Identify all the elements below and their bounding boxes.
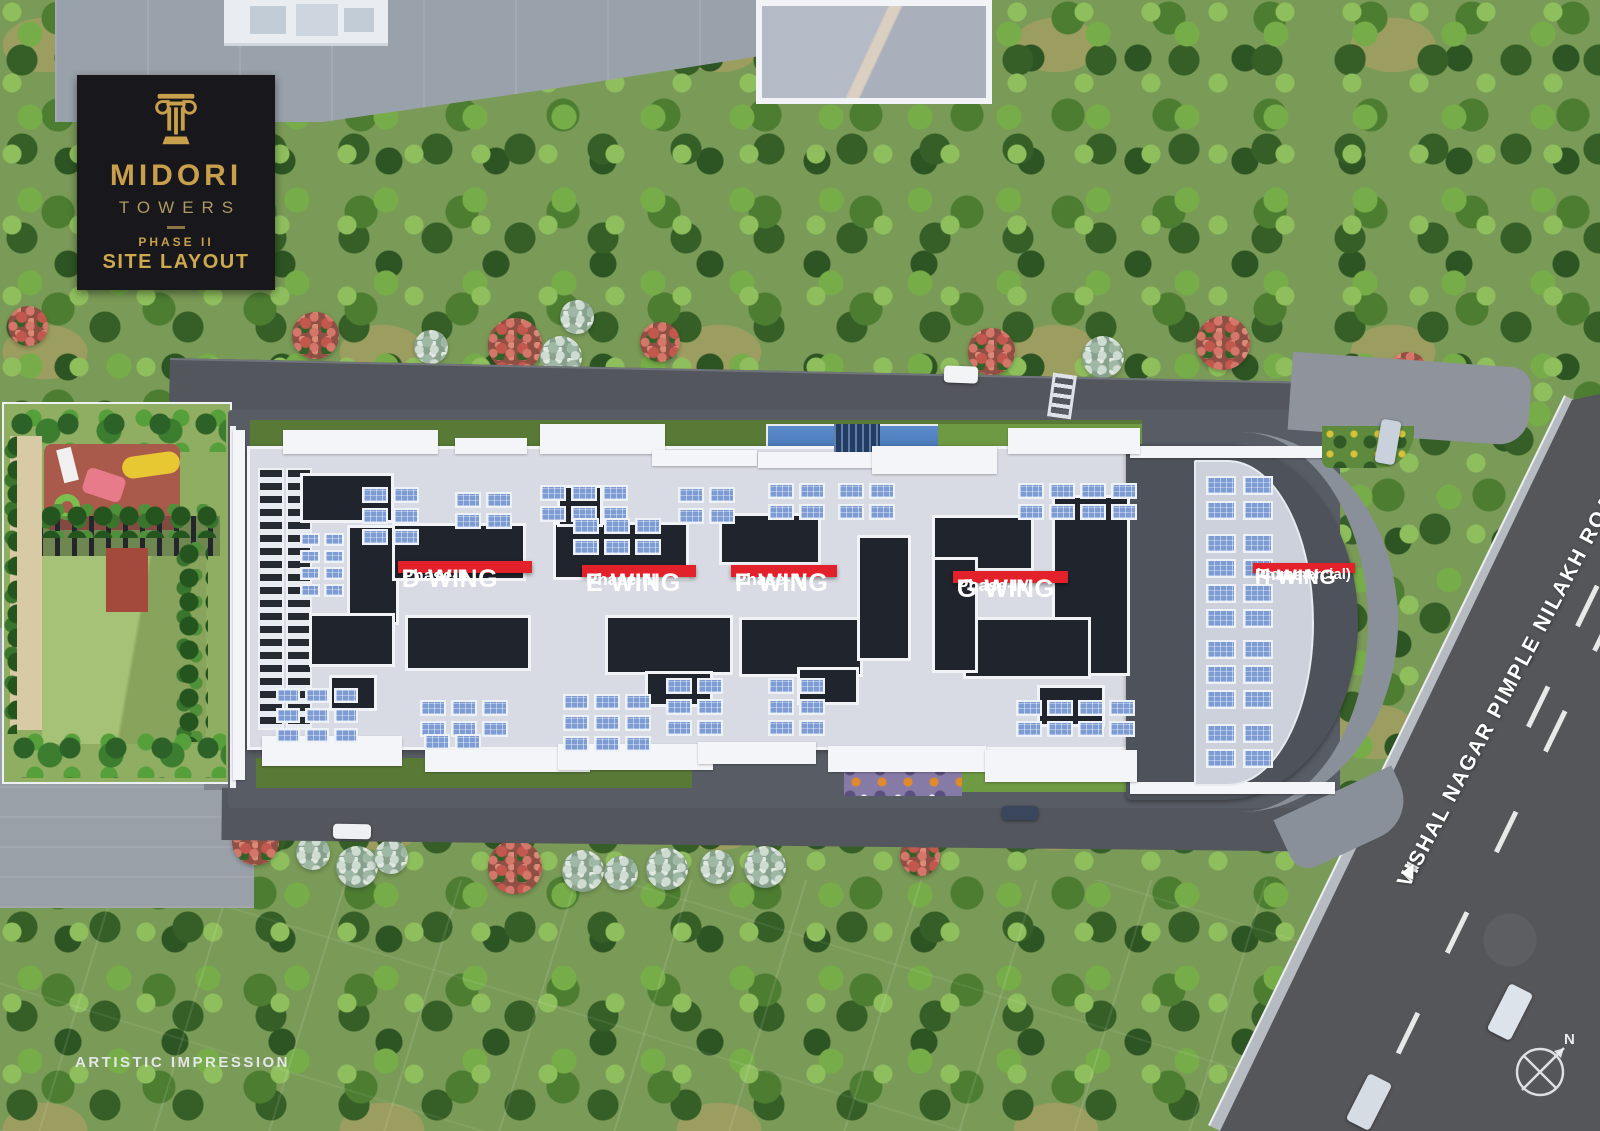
solar-panel [1206,501,1236,520]
solar-panel [1111,483,1137,499]
white-roof-block [233,430,245,780]
solar-panel [1016,721,1042,737]
solar-panel [393,508,419,524]
shrub-row [38,504,220,538]
solar-panel [768,699,794,715]
solar-panel [334,728,358,743]
solar-panel [594,736,620,752]
solar-panel [1243,640,1273,659]
silver-tree [560,300,594,334]
solar-panel [1018,504,1044,520]
solar-panel [563,736,589,752]
solar-panel [1206,640,1236,659]
wing-phase: Phase-IV [957,576,1029,596]
solar-panel [1206,665,1236,684]
solar-panel [563,694,589,710]
solar-panel [324,550,344,563]
tower-core-roof [608,618,730,672]
silver-tree [700,850,734,884]
silver-tree [336,846,378,888]
flowering-tree [640,322,680,362]
flowering-tree [8,306,48,346]
silver-tree [414,330,448,364]
solar-panel [276,688,300,703]
silver-tree [646,848,688,890]
solar-panel [635,518,661,534]
solar-panel [455,734,481,750]
solar-panel [451,700,477,716]
wing-label-e: E WING Phase-III [582,565,696,577]
solar-panel [1243,609,1273,628]
wing-label-d: D WING Phase-II [398,561,532,573]
neighbour-building-b [756,0,992,104]
solar-panel [482,700,508,716]
solar-panel [324,584,344,597]
flowering-tree [1196,316,1250,370]
solar-panel [455,492,481,508]
solar-panel [799,483,825,499]
wing-phase: Phase-II [402,566,467,586]
solar-panel [666,720,692,736]
white-roof-block [283,430,438,454]
solar-panel [869,483,895,499]
solar-panel [482,721,508,737]
tower-core-roof [312,616,392,664]
solar-panel [838,483,864,499]
solar-panel [1080,483,1106,499]
sheet-title: SITE LAYOUT [103,251,250,274]
solar-panel [625,736,651,752]
project-logo-card: MIDORI TOWERS PHASE II SITE LAYOUT [77,75,275,290]
solar-panel [1206,534,1236,553]
solar-panel [1111,504,1137,520]
solar-panel [1206,724,1236,743]
solar-panel [678,508,704,524]
solar-panel [300,550,320,563]
solar-panel [1243,749,1273,768]
solar-panel [276,728,300,743]
flowering-tree [488,840,542,894]
neighbour-building-a [224,0,388,46]
solar-panel [486,492,512,508]
silver-tree [296,836,330,870]
silver-tree [604,856,638,890]
solar-panel [1080,504,1106,520]
solar-panel [305,728,329,743]
solar-panel [1206,476,1236,495]
car [1002,806,1038,820]
solar-panel [768,678,794,694]
silver-tree [1082,336,1124,378]
solar-panel [1109,700,1135,716]
solar-panel [563,715,589,731]
solar-panel [486,513,512,529]
solar-panel [393,487,419,503]
solar-panel [1109,721,1135,737]
solar-panel [1206,749,1236,768]
wing-label-h: H WING Phase-V (Commercial) [1253,563,1355,573]
solar-panel [1018,483,1044,499]
solar-panel [594,694,620,710]
solar-panel [1206,559,1236,578]
solar-panel [334,708,358,723]
solar-panel [697,699,723,715]
wing-phase: Phase-IV [735,570,807,590]
solar-panel [799,720,825,736]
tower-core-roof [966,620,1088,676]
solar-panel [666,699,692,715]
solar-panel [1243,534,1273,553]
solar-panel [604,539,630,555]
white-roof-block [872,446,997,474]
survey-plot-lines [0,880,1300,1131]
solar-panel [799,504,825,520]
white-roof-block [828,746,986,772]
wing-label-f: F WING Phase-IV [731,565,837,577]
solar-panel [838,504,864,520]
solar-panel [455,513,481,529]
compass-icon: N [1500,1026,1584,1110]
tower-core-roof [742,620,860,674]
divider [167,226,185,229]
solar-panel [424,734,450,750]
wing-note: (Commercial) [1255,567,1351,584]
solar-panel [625,694,651,710]
solar-panel [625,715,651,731]
h-wing-parapet [1130,446,1335,458]
solar-panel [362,529,388,545]
brand-phase: PHASE II [138,235,213,249]
site-layout-scene: ◀VISHAL NAGAR PIMPLE NILAKH ROAD▶ N D WI… [0,0,1600,1131]
disclaimer-text: ARTISTIC IMPRESSION [75,1054,290,1071]
solar-panel [573,539,599,555]
solar-panel [393,529,419,545]
tower-core-roof [722,516,818,562]
white-roof-block [455,438,527,454]
solar-panel [334,688,358,703]
solar-panel [1243,690,1273,709]
white-roof-block [1008,428,1140,454]
compass-n-label: N [1564,1031,1575,1048]
solar-panel [666,678,692,694]
solar-panel [300,567,320,580]
solar-panel [1206,609,1236,628]
brand-name: MIDORI [110,159,242,193]
flowering-tree [292,312,339,359]
solar-panel [362,487,388,503]
solar-panel [1016,700,1042,716]
solar-panel [573,518,599,534]
silver-tree [562,850,604,892]
white-roof-block [985,750,1137,782]
solar-panel [1078,721,1104,737]
tower-core-roof [408,618,528,668]
wing-label-g: G WING Phase-IV [953,571,1068,583]
solar-panel [1243,724,1273,743]
solar-panel [276,708,300,723]
solar-panel [324,567,344,580]
solar-panel [362,508,388,524]
solar-panel [1049,483,1075,499]
solar-panel [602,485,628,501]
solar-panel [768,504,794,520]
solar-panel [604,518,630,534]
car [333,824,371,840]
solar-panel [1206,690,1236,709]
wing-phase: Phase-III [586,570,656,590]
white-roof-block [652,450,757,466]
solar-panel [1047,721,1073,737]
solar-panel [420,700,446,716]
solar-panel [709,487,735,503]
tower-core-roof [860,538,908,658]
hedge-column [176,542,208,742]
solar-panel [768,483,794,499]
car [944,365,979,383]
solar-panel [1243,476,1273,495]
solar-panel [799,678,825,694]
silver-tree [744,846,786,888]
white-roof-block [540,424,665,454]
hedge-column [4,434,17,734]
solar-panel [300,533,320,546]
palm-row [10,730,226,778]
solar-panel [305,688,329,703]
white-roof-block [698,742,816,764]
solar-panel [768,720,794,736]
solar-panel [540,506,566,522]
solar-panel [305,708,329,723]
solar-panel [1078,700,1104,716]
solar-panel [1049,504,1075,520]
solar-panel [635,539,661,555]
solar-panel [799,699,825,715]
solar-panel [300,584,320,597]
solar-panel [697,678,723,694]
solar-panel [678,487,704,503]
brand-subtitle: TOWERS [119,198,241,218]
column-icon [145,91,207,147]
amenity-plot [2,402,232,784]
solar-panel [697,720,723,736]
solar-panel [1243,501,1273,520]
solar-panel [1047,700,1073,716]
solar-panel [869,504,895,520]
solar-panel [1206,584,1236,603]
silver-tree [374,840,408,874]
sports-patch [106,548,148,612]
solar-panel [324,533,344,546]
solar-panel [709,508,735,524]
solar-panel [1243,665,1273,684]
solar-panel [540,485,566,501]
solar-panel [594,715,620,731]
solar-panel [571,485,597,501]
pavement-bottom-left [0,780,254,908]
